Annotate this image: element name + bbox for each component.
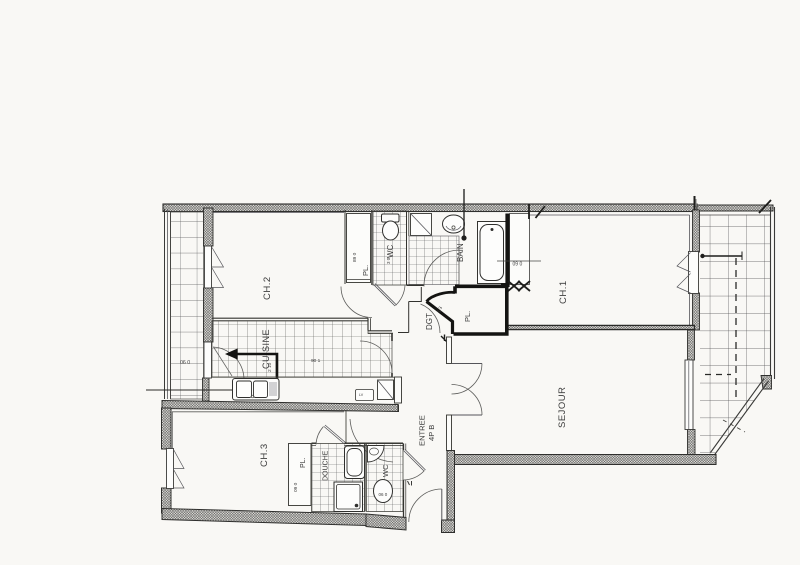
svg-text:89 0: 89 0 <box>352 252 358 262</box>
svg-text:DOUCHE: DOUCHE <box>323 450 330 481</box>
svg-text:09 0: 09 0 <box>293 482 299 492</box>
svg-text:ENTREE: ENTREE <box>418 415 427 446</box>
svg-text:CH.2: CH.2 <box>262 276 273 300</box>
svg-text:90 1: 90 1 <box>311 358 321 364</box>
svg-text:CH.1: CH.1 <box>558 280 569 304</box>
svg-text:WC: WC <box>381 464 390 477</box>
svg-text:06 0: 06 0 <box>180 360 190 366</box>
svg-text:CH.3: CH.3 <box>259 443 270 467</box>
svg-text:LV: LV <box>359 393 364 397</box>
svg-text:SEJOUR: SEJOUR <box>557 386 568 428</box>
svg-text:PL.: PL. <box>361 265 370 276</box>
svg-text:09 0: 09 0 <box>513 262 523 268</box>
svg-text:PL.: PL. <box>300 457 307 468</box>
svg-text:2 10: 2 10 <box>267 362 273 372</box>
svg-text:4P B: 4P B <box>427 425 436 441</box>
svg-text:WC: WC <box>386 244 395 258</box>
svg-text:PL.: PL. <box>463 311 472 322</box>
svg-text:3 0: 3 0 <box>386 257 391 264</box>
svg-text:BAIN: BAIN <box>456 243 465 262</box>
svg-text:06 0: 06 0 <box>379 492 388 497</box>
svg-text:DGT: DGT <box>425 313 434 330</box>
